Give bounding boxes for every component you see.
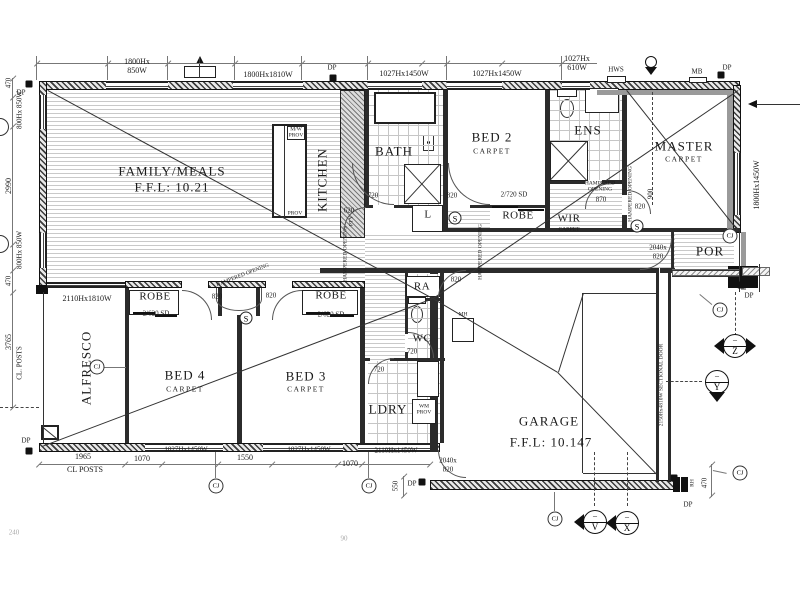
plan-label: 820 (212, 294, 223, 301)
plan-label: DP (745, 293, 754, 300)
line (594, 452, 595, 506)
line (756, 104, 800, 105)
window (47, 282, 125, 288)
plan-label: 1027Hx1450W (379, 70, 428, 78)
window (39, 95, 47, 129)
plan-label: HWS (608, 67, 624, 74)
plan-label: WIR (558, 214, 581, 225)
plan-label: 1027Hx (564, 55, 590, 63)
wall (597, 90, 733, 95)
smoke-alarm-marker: S (449, 212, 462, 225)
plan-label: ROBE (502, 211, 533, 222)
window (39, 233, 47, 268)
plan-label: 820 (451, 277, 462, 284)
wall (689, 77, 707, 83)
grid-bubble (0, 235, 9, 253)
elevation-marker: –Y (705, 370, 729, 394)
wall (430, 480, 680, 490)
plan-label: 1800Hx1810W (243, 71, 292, 79)
plan-label: 1800Hx (124, 58, 150, 66)
plan-label: PROV (289, 133, 304, 139)
window-mullion (106, 86, 168, 87)
plan-label: BED 3 (286, 370, 327, 383)
plan-label: 900 (648, 189, 655, 200)
line (368, 452, 369, 478)
wall (668, 268, 671, 482)
line (107, 56, 108, 80)
cj-marker: CJ (548, 512, 563, 527)
plan-label: DP (22, 438, 31, 445)
plan-label: PROV (288, 211, 303, 217)
plan-label: 2110Hx1810W (62, 295, 111, 303)
plan-label: 3765 (5, 334, 13, 350)
line (446, 56, 447, 80)
plan-label: 1027Hx1450W (287, 447, 330, 454)
plan-label: 1027Hx1450W (164, 447, 207, 454)
wall (365, 205, 373, 208)
window (106, 81, 168, 90)
plan-label: 2/620 SD (143, 311, 170, 318)
plan-label: 1070 (134, 455, 150, 463)
elevation-marker: –X (615, 511, 639, 535)
plan-label: CARPET (166, 385, 204, 393)
plan-label: RH (690, 479, 696, 487)
downpipe-marker (738, 282, 745, 289)
elevation-marker: –Z (723, 334, 747, 358)
door-swing (182, 290, 212, 320)
plan-label: 820 (447, 193, 458, 200)
window-mullion (368, 86, 422, 87)
wall (443, 90, 448, 232)
plan-label: HAMPERED OPENING (343, 226, 349, 282)
elev-top: – (616, 512, 638, 522)
smoke-alarm-marker: S (240, 312, 253, 325)
elev-top: – (706, 371, 728, 381)
window-mullion (43, 233, 44, 268)
plan-label: RA (414, 282, 430, 293)
plan-label: DP (723, 65, 732, 72)
plan-label: HAMPERED OPENING (478, 224, 484, 280)
plan-label: GARAGE (519, 415, 579, 428)
plan-label: 2110Hx1450W (375, 448, 418, 455)
plan-label: LDRY (369, 403, 408, 416)
line (10, 289, 17, 296)
plan-label: 820 (266, 293, 277, 300)
cj-marker: CJ (209, 479, 224, 494)
plan-label: 820 (635, 204, 646, 211)
plan-label: DP (328, 65, 337, 72)
plan-label: 820 (653, 254, 664, 261)
line (36, 56, 37, 80)
plan-label: 2/620 SD (318, 312, 345, 319)
plan-label: F.F.L: 10.21 (135, 181, 210, 194)
plan-label: 800Hx 850W (17, 231, 24, 269)
wall (742, 267, 770, 276)
plan-label: 850W (127, 67, 147, 75)
grid-bubble (0, 118, 9, 136)
window-mullion (233, 86, 303, 87)
door-swing (216, 288, 262, 311)
cj-marker: CJ (90, 360, 105, 375)
line (672, 276, 740, 277)
downpipe-marker (718, 72, 725, 79)
plan-label: 2150Hx4810W SECTIONAL DOOR (659, 344, 665, 427)
elev-top: – (584, 511, 606, 521)
line (711, 464, 712, 497)
wall (360, 288, 365, 443)
plan-label: ROBE (139, 292, 170, 303)
line (735, 292, 736, 336)
line (583, 293, 656, 294)
line (234, 56, 235, 80)
elev-top: – (724, 335, 746, 345)
line (672, 270, 740, 271)
plan-label: 820 (443, 467, 454, 474)
plan-label: 1027Hx1450W (472, 70, 521, 78)
line (709, 461, 716, 468)
plan-label: 2990 (5, 178, 13, 194)
plan-label: 550 (393, 481, 400, 492)
vent-arrow-icon (645, 67, 657, 75)
plan-label: 720 (368, 193, 379, 200)
plan-label: KITCHEN (316, 148, 329, 212)
plan-label: CARPET (287, 385, 325, 393)
wall (672, 232, 674, 268)
line (699, 294, 712, 305)
window-mullion (737, 153, 738, 215)
elev-arrow-icon (606, 515, 616, 531)
line (558, 293, 584, 372)
plan-label: F.F.L: 10.147 (510, 436, 592, 449)
downpipe-marker (330, 75, 337, 82)
elev-arrow-icon (746, 338, 756, 354)
wall (374, 92, 436, 124)
plan-label: DP (408, 481, 417, 488)
elev-letter: V (584, 522, 606, 533)
plan-label: ENS (574, 124, 602, 137)
line (0, 407, 39, 408)
window (368, 81, 422, 90)
plan-label: 90 (341, 536, 348, 543)
line (167, 56, 168, 80)
elevation-marker: –V (583, 510, 607, 534)
cj-marker: CJ (713, 303, 728, 318)
elev-arrow-icon (714, 338, 724, 354)
window-mullion (562, 86, 590, 87)
wall (237, 315, 242, 443)
plan-label: 1070 (342, 460, 358, 468)
plan-label: CL. POSTS (17, 346, 24, 379)
plan-label: 1800Hx1450W (753, 160, 761, 209)
plan-label: PROV (417, 410, 432, 416)
plan-label: FAMILY/MEALS (118, 165, 225, 178)
window (562, 81, 590, 90)
plan-label: BED 2 (472, 131, 513, 144)
plan-label: HAMPERED OPENING (628, 166, 634, 222)
cj-marker: CJ (733, 466, 748, 481)
plan-label: 470 (6, 276, 13, 287)
plan-label: MB (692, 69, 703, 76)
line (215, 452, 216, 478)
plan-label: MH (459, 312, 468, 318)
window-mullion (447, 86, 502, 87)
line (37, 63, 597, 64)
elev-letter: Z (724, 346, 746, 357)
wall (448, 228, 740, 232)
wall (430, 268, 438, 274)
downpipe-marker (26, 448, 33, 455)
window (233, 81, 303, 90)
window-mullion (47, 285, 125, 286)
line (666, 381, 702, 382)
plan-label: 620 (344, 208, 355, 215)
plan-label: OPENING (588, 187, 612, 193)
plan-label: 870 (596, 197, 607, 204)
plan-label: ROBE (315, 291, 346, 302)
window (733, 153, 741, 215)
wall (557, 89, 577, 97)
downpipe-marker (26, 81, 33, 88)
line (709, 492, 716, 499)
plan-label: 610W (567, 64, 587, 72)
line (301, 56, 302, 80)
plan-label: POR (696, 245, 724, 258)
plan-label: 1550 (237, 454, 253, 462)
plan-label: 1965 (75, 453, 91, 461)
wall (417, 361, 439, 397)
cj-marker: CJ (362, 479, 377, 494)
window-mullion (43, 95, 44, 129)
plan-label: 470 (6, 78, 13, 89)
plan-label: WC (413, 334, 432, 345)
line (43, 292, 44, 443)
plan-label: 240 (9, 530, 20, 537)
line (284, 126, 285, 217)
line (367, 56, 368, 80)
line (627, 452, 628, 506)
wall (292, 281, 365, 288)
smoke-alarm-marker: S (631, 220, 644, 233)
plan-label: PTY (349, 216, 355, 226)
elev-arrow-icon (574, 514, 584, 530)
downpipe-marker (671, 475, 678, 482)
line (104, 367, 126, 368)
plan-label: CL POSTS (67, 466, 103, 474)
elev-arrow-icon (709, 392, 725, 402)
line (401, 492, 408, 499)
plan-label: CARPET (558, 227, 579, 233)
plan-label: DP (684, 502, 693, 509)
wall (681, 477, 688, 492)
plan-label: MASTER (655, 140, 714, 153)
elev-letter: X (616, 523, 638, 534)
wall (184, 66, 216, 78)
floor-plan-canvas: FAMILY/MEALSF.F.L: 10.21KITCHENBATHBED 2… (0, 0, 800, 600)
wall (394, 205, 412, 208)
line (561, 56, 562, 80)
cj-marker: CJ (723, 229, 738, 244)
line (427, 461, 434, 468)
plan-label: L (424, 210, 431, 221)
plan-label: 720 (374, 367, 385, 374)
window (447, 81, 502, 90)
plan-label: 2/720 SD (501, 192, 528, 199)
plan-label: 800Hx 850W (17, 91, 24, 129)
line (554, 492, 555, 511)
plan-label: CARPET (665, 155, 703, 163)
plan-label: CARPET (473, 147, 511, 155)
wall (365, 358, 370, 361)
line (759, 264, 760, 292)
plan-label: BED 4 (165, 369, 206, 382)
downpipe-marker (419, 479, 426, 486)
plan-label: 2040x (439, 458, 457, 465)
plan-label: 2040x (649, 245, 667, 252)
line (199, 58, 200, 78)
plan-label: BATH (375, 145, 413, 158)
line (713, 470, 727, 474)
plan-label: 470 (702, 478, 709, 489)
plan-label: 720 (407, 349, 418, 356)
sliding-door (492, 206, 518, 208)
wall (125, 281, 182, 288)
wall (607, 76, 626, 83)
